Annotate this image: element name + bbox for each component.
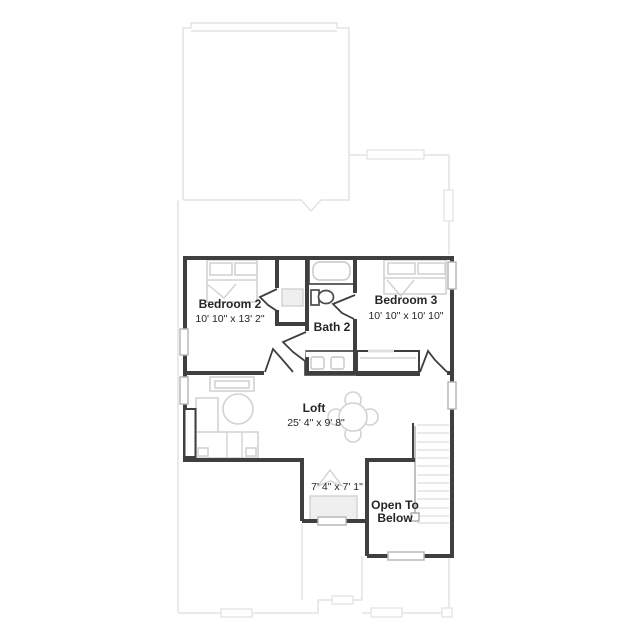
desk [310, 470, 357, 521]
window-tech-nook [318, 517, 346, 525]
loft-dims-label: 25' 4" x 9' 8" [287, 417, 345, 429]
bath2-name-label: Bath 2 [314, 320, 351, 334]
below-window [332, 596, 353, 604]
window-open-to-below [388, 552, 424, 560]
floor-plan-canvas: Bedroom 2 10' 10" x 13' 2" Bath 2 Bedroo… [0, 0, 640, 640]
below-window [367, 150, 424, 159]
below-window [444, 190, 453, 221]
below-window [442, 608, 452, 617]
door-bedroom2 [265, 349, 293, 372]
media-console [210, 377, 254, 391]
window-stairwell [448, 382, 456, 409]
stair-treads [417, 425, 449, 523]
bedroom3-name-label: Bedroom 3 [375, 293, 438, 307]
door-bath2-inner [333, 295, 355, 319]
round-chair [223, 394, 253, 424]
window-bedroom3 [448, 262, 456, 289]
bed-bedroom2 [207, 260, 257, 302]
bedroom2-name-label: Bedroom 2 [199, 297, 262, 311]
wall-chase [185, 409, 196, 457]
toilet [311, 290, 334, 305]
bed-bedroom3 [384, 260, 446, 296]
door-bedroom2-closet [260, 289, 277, 311]
open-to-below-label-line2: Below [377, 511, 413, 525]
door-bath2 [283, 332, 306, 361]
bedroom3-dims-label: 10' 10" x 10' 10" [368, 310, 443, 322]
window-bedroom2 [180, 329, 188, 355]
closet-shelf-bedroom2 [282, 289, 303, 306]
door-bedroom3 [420, 351, 447, 372]
below-window [221, 609, 252, 617]
window-loft-left [180, 377, 188, 404]
loft-name-label: Loft [303, 401, 326, 415]
tech-nook-dims-label: 7' 4" x 7' 1" [311, 481, 363, 493]
bedroom2-dims-label: 10' 10" x 13' 2" [195, 313, 265, 325]
below-window [371, 608, 402, 617]
bathtub [309, 258, 354, 284]
open-to-below-label-line1: Open To [371, 498, 419, 512]
floor-plan-page: Bedroom 2 10' 10" x 13' 2" Bath 2 Bedroo… [0, 0, 640, 640]
